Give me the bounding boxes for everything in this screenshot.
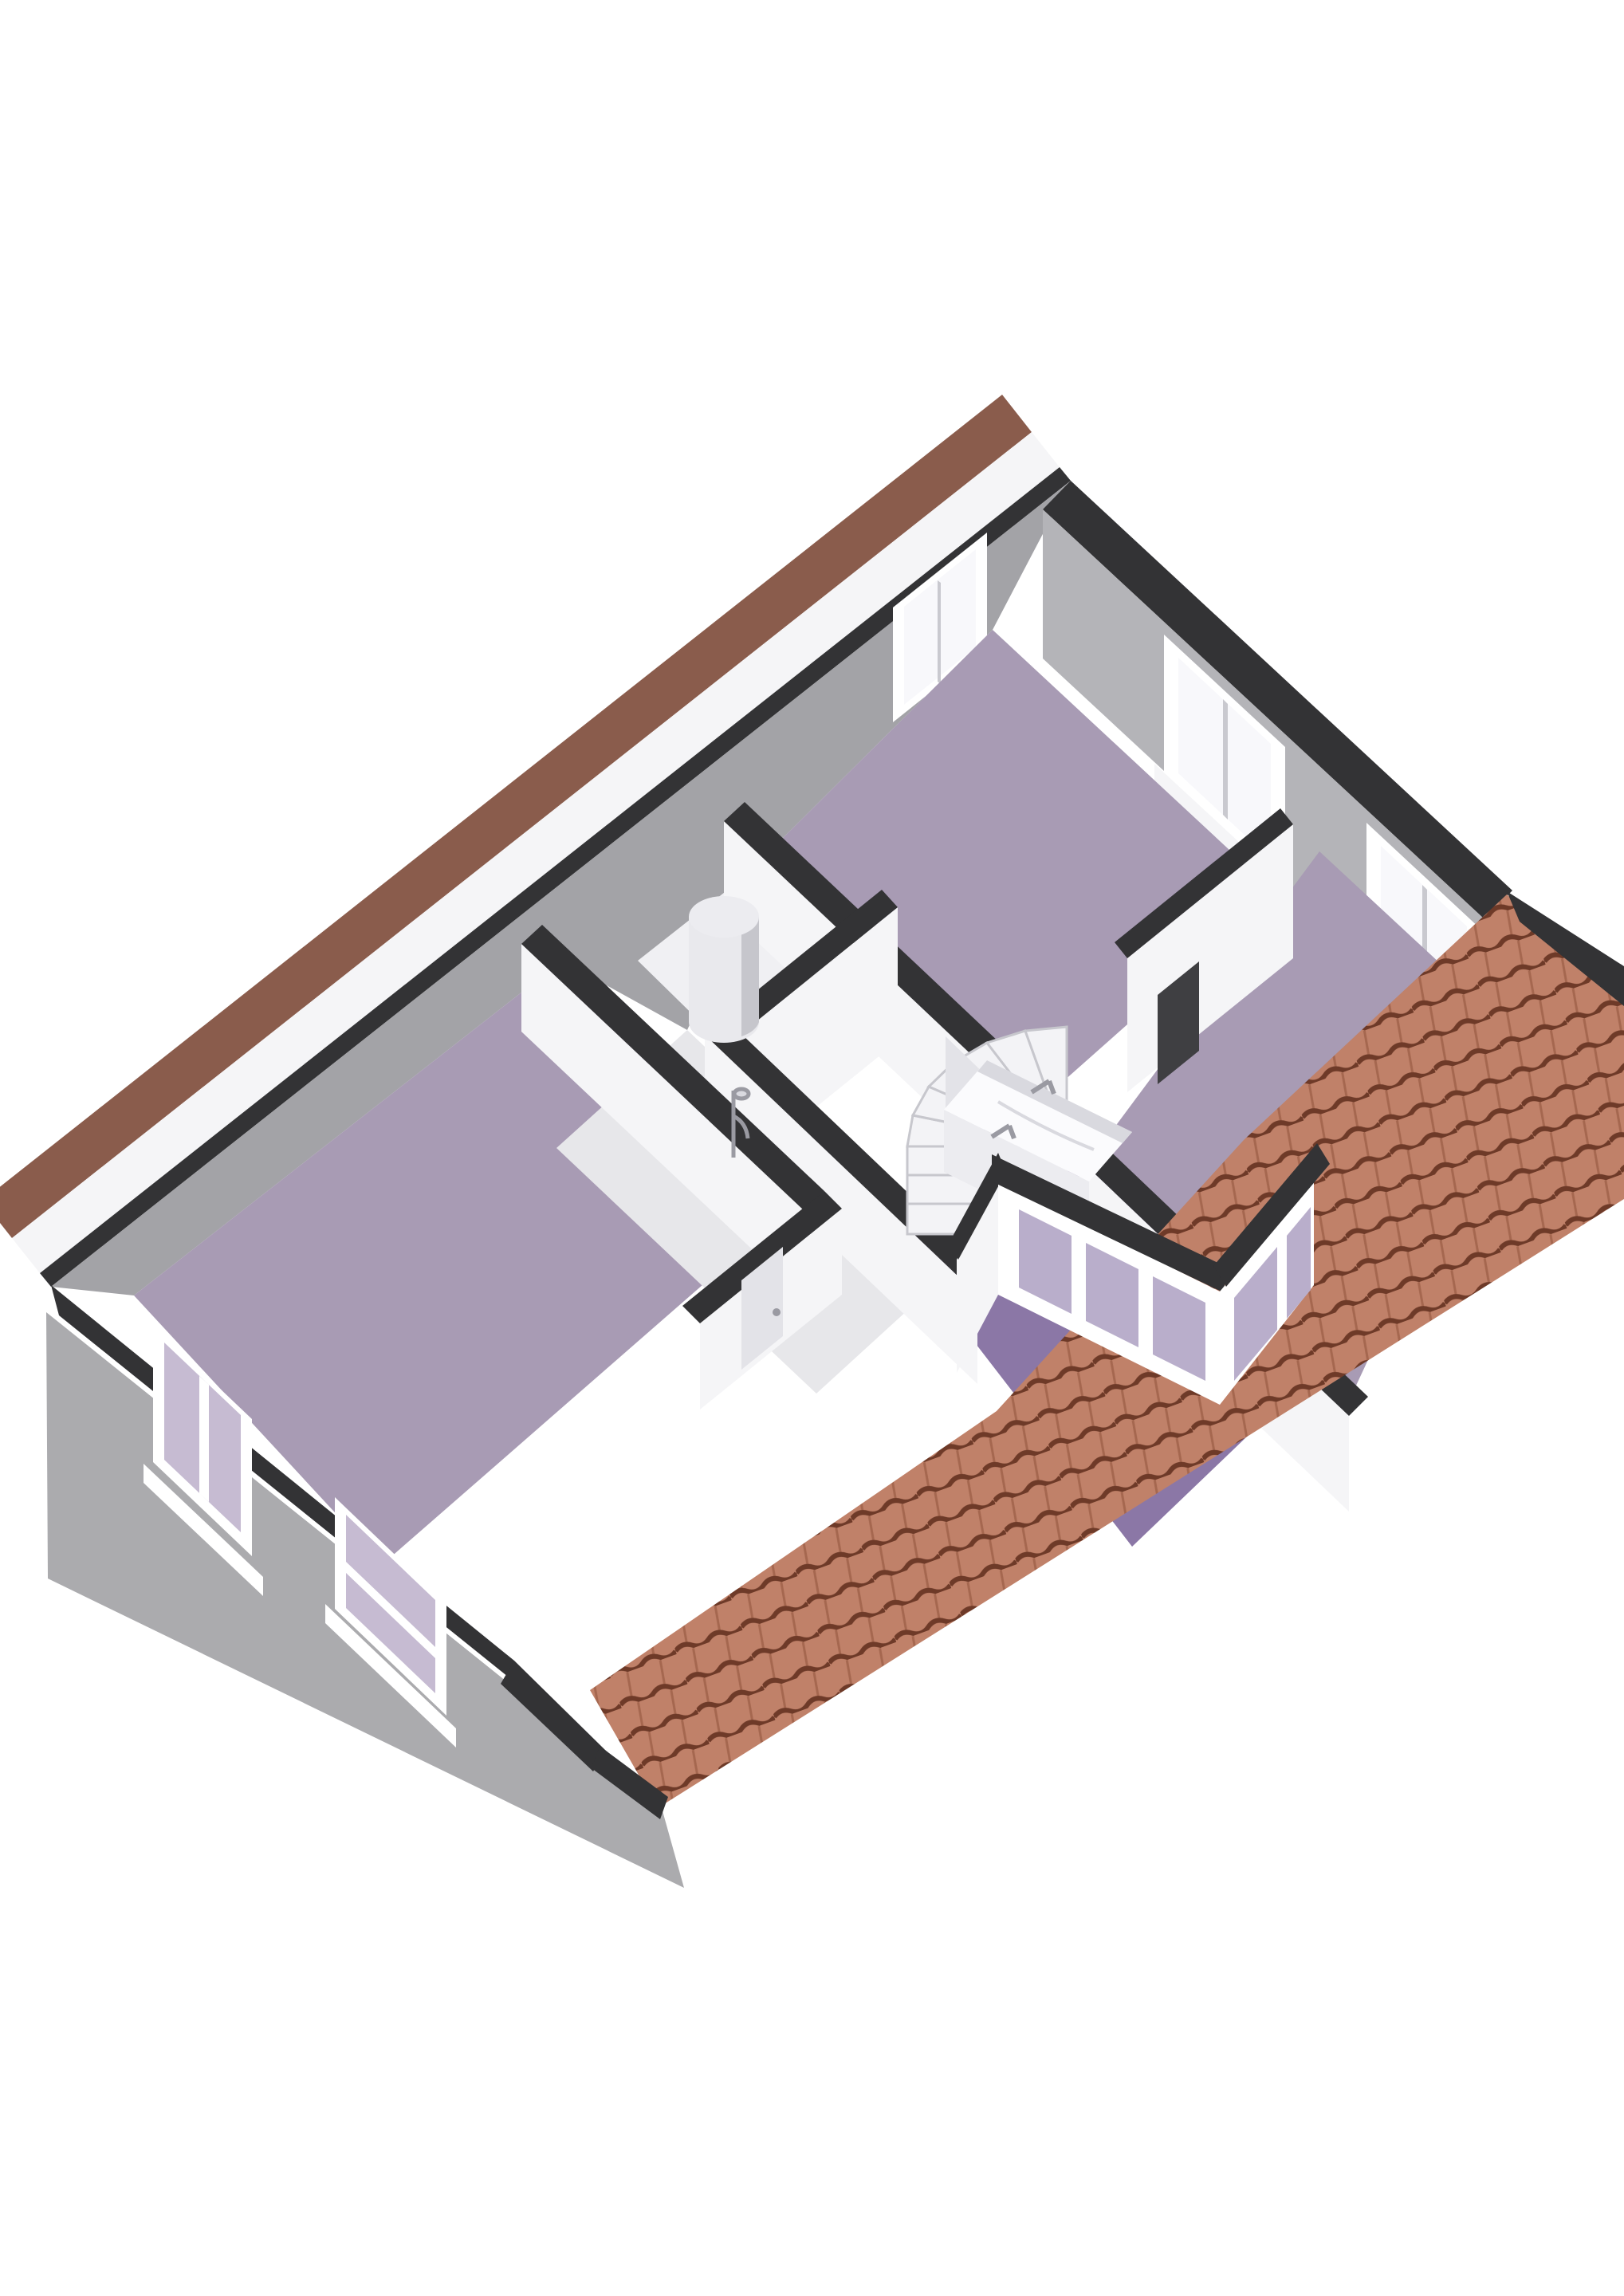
floorplan-3d-screenshot (0, 0, 1624, 2296)
chimney-duct (689, 896, 759, 1043)
door-handle (773, 1308, 781, 1316)
window-mullion (1223, 699, 1228, 820)
floorplan-3d-render (0, 0, 1624, 2296)
shower-head (734, 1089, 749, 1099)
window-mullion (938, 580, 941, 684)
window-mullion (199, 1376, 209, 1502)
chimney-top (689, 896, 759, 938)
chimney-shading (741, 917, 759, 1036)
